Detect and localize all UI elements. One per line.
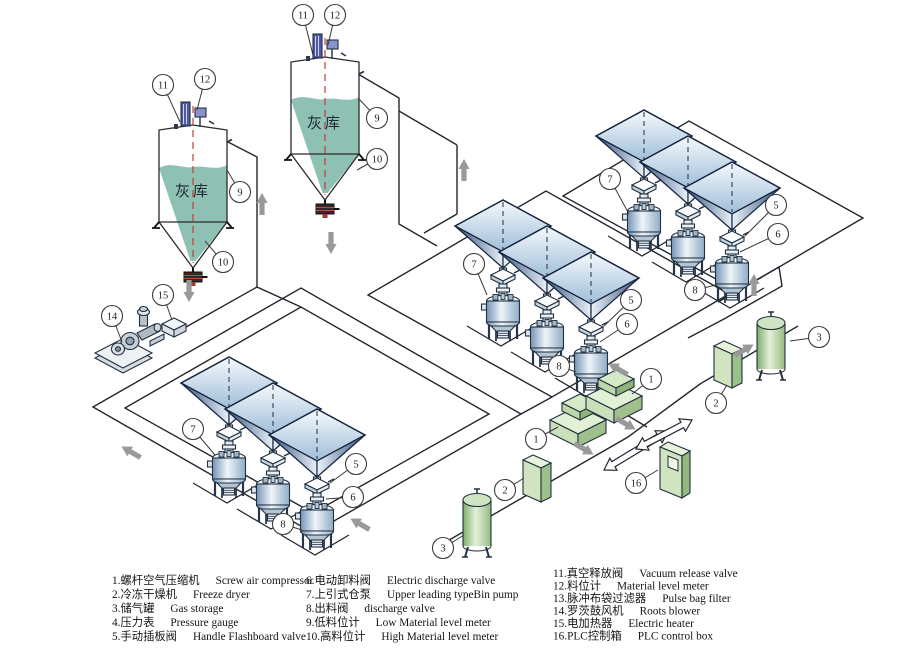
callout-number: 16 bbox=[631, 479, 642, 490]
flow-arrow-icon bbox=[458, 159, 469, 181]
legend-item-en: Handle Flashboard valve bbox=[193, 631, 306, 643]
callout: 14 bbox=[102, 306, 123, 343]
legend-item-en: Upper leading typeBin pump bbox=[387, 589, 519, 601]
legend-item-zh: 7.上引式仓泵 bbox=[306, 587, 371, 601]
legend-item-zh: 2.冷冻干燥机 bbox=[112, 587, 178, 601]
callout-number: 7 bbox=[607, 175, 612, 186]
bin-pump-1-3 bbox=[296, 477, 335, 550]
callout: 1 bbox=[632, 369, 662, 395]
legend-item-en: Pressure gauge bbox=[170, 617, 238, 629]
legend-item-en: Roots blower bbox=[640, 606, 701, 618]
callout: 12 bbox=[195, 69, 216, 111]
callout-number: 3 bbox=[440, 544, 445, 555]
silo-label: 灰库 bbox=[307, 115, 343, 132]
callout: 16 bbox=[626, 470, 659, 494]
callout-number: 10 bbox=[372, 155, 383, 166]
callout-number: 12 bbox=[330, 11, 341, 22]
legend-item-zh: 6.电动卸料阀 bbox=[306, 573, 371, 587]
legend-item-zh: 15.电加热器 bbox=[553, 617, 612, 630]
callout: 12 bbox=[325, 5, 346, 46]
legend-item-en: Low Material level meter bbox=[376, 617, 491, 629]
callout-number: 5 bbox=[628, 296, 633, 307]
legend-item-en: Freeze dryer bbox=[193, 589, 250, 601]
callout-number: 8 bbox=[280, 520, 285, 531]
callout: 6 bbox=[740, 224, 789, 253]
legend-item-en: PLC control box bbox=[638, 631, 714, 643]
legend-item: 7.上引式仓泵Upper leading typeBin pump bbox=[306, 587, 519, 601]
callout-number: 11 bbox=[298, 11, 308, 22]
pipe-run bbox=[228, 142, 301, 307]
flow-arrow-icon bbox=[119, 442, 144, 463]
callout: 7 bbox=[600, 169, 630, 215]
legend-item-zh: 5.手动插板阀 bbox=[112, 629, 177, 643]
silo-label: 灰库 bbox=[175, 183, 211, 200]
legend-item-en: discharge valve bbox=[364, 603, 434, 615]
legend-item: 2.冷冻干燥机Freeze dryer bbox=[112, 587, 250, 601]
callout-number: 1 bbox=[648, 375, 653, 386]
legend-item-en: Material level meter bbox=[617, 581, 709, 593]
callout-number: 9 bbox=[374, 114, 379, 125]
flow-arrow-icon bbox=[748, 274, 759, 296]
legend-item-zh: 9.低料位计 bbox=[306, 615, 360, 629]
callout-number: 1 bbox=[533, 435, 538, 446]
callout: 3 bbox=[433, 535, 465, 559]
flow-arrow-icon bbox=[325, 232, 336, 254]
legend-item: 12.料位计Material level meter bbox=[553, 579, 709, 593]
callout: 15 bbox=[153, 285, 174, 321]
callout-number: 11 bbox=[158, 81, 168, 92]
process-flow-diagram-canvas: 灰库灰库 11129101514111291075687568756812312… bbox=[0, 0, 920, 650]
legend-item-en: Electric discharge valve bbox=[387, 575, 495, 587]
callout-number: 3 bbox=[816, 333, 821, 344]
utility-equipment bbox=[462, 312, 786, 557]
legend-item-en: Screw air compressor bbox=[216, 575, 314, 587]
legend-item-zh: 3.储气罐 bbox=[112, 601, 154, 615]
bin-pump-2-1 bbox=[482, 268, 521, 341]
callout-number: 15 bbox=[158, 291, 169, 302]
callout: 10 bbox=[205, 241, 234, 273]
level-meter-icon bbox=[195, 108, 206, 117]
legend-item-zh: 8.出料阀 bbox=[306, 601, 348, 615]
legend-item-zh: 10.高料位计 bbox=[306, 629, 365, 643]
electric-heater bbox=[162, 318, 186, 337]
legend-item-en: Pulse bag filter bbox=[662, 593, 731, 605]
callout-number: 8 bbox=[692, 286, 697, 297]
legend-item-zh: 16.PLC控制箱 bbox=[553, 629, 622, 643]
legend-item: 13.脉冲布袋过滤器Pulse bag filter bbox=[553, 591, 731, 605]
legend-item: 3.储气罐Gas storage bbox=[112, 601, 223, 615]
pipe-run bbox=[521, 397, 552, 414]
gas-storage-tank-1 bbox=[462, 489, 492, 557]
legend-item: 10.高料位计High Material level meter bbox=[306, 629, 499, 643]
flow-arrow-icon bbox=[348, 514, 373, 535]
callout-number: 12 bbox=[200, 75, 211, 86]
callout-number: 7 bbox=[190, 425, 195, 436]
legend-item: 8.出料阀discharge valve bbox=[306, 601, 435, 615]
pipe-run bbox=[186, 287, 257, 327]
callout-number: 6 bbox=[624, 320, 629, 331]
callout-number: 7 bbox=[471, 260, 476, 271]
legend-item: 11.真空释放阀Vacuum release valve bbox=[553, 566, 738, 580]
ash-silo: 灰库 bbox=[284, 34, 366, 218]
legend-item: 15.电加热器Electric heater bbox=[553, 617, 694, 630]
callout: 11 bbox=[153, 75, 181, 123]
callout-number: 6 bbox=[350, 493, 355, 504]
callout-number: 5 bbox=[773, 201, 778, 212]
legend-item-en: Electric heater bbox=[628, 618, 694, 630]
pulse-bag-filter-icon bbox=[313, 34, 322, 58]
legend-item-en: High Material level meter bbox=[381, 631, 498, 643]
gas-storage-tank-2 bbox=[756, 312, 786, 380]
legend-item-zh: 4.压力表 bbox=[112, 615, 154, 629]
legend-item: 9.低料位计Low Material level meter bbox=[306, 615, 491, 629]
legend-item-en: Vacuum release valve bbox=[639, 568, 737, 580]
callout-number: 9 bbox=[237, 188, 242, 199]
freeze-dryer-2 bbox=[714, 341, 742, 388]
bin-pump-3-2 bbox=[667, 204, 706, 277]
legend-item-zh: 13.脉冲布袋过滤器 bbox=[553, 591, 646, 605]
callout: 11 bbox=[293, 5, 314, 56]
callout-number: 8 bbox=[556, 362, 561, 373]
callout-number: 5 bbox=[353, 460, 358, 471]
callout: 2 bbox=[706, 385, 728, 414]
legend-item: 5.手动插板阀Handle Flashboard valve bbox=[112, 629, 306, 643]
callout: 9 bbox=[227, 170, 251, 203]
legend-item: 16.PLC控制箱PLC control box bbox=[553, 629, 713, 643]
legend-item-zh: 11.真空释放阀 bbox=[553, 566, 623, 580]
callout-number: 2 bbox=[713, 399, 718, 410]
plc-control-box bbox=[660, 442, 690, 498]
legend-item: 6.电动卸料阀Electric discharge valve bbox=[306, 573, 495, 587]
callout: 9 bbox=[359, 99, 388, 129]
callout-number: 10 bbox=[218, 258, 229, 269]
callout: 6 bbox=[600, 314, 638, 343]
legend-item: 14.罗茨鼓风机Roots blower bbox=[553, 604, 700, 618]
callout: 2 bbox=[495, 478, 525, 501]
legend-item: 1.螺杆空气压缩机Screw air compressor bbox=[112, 573, 314, 587]
legend-item: 4.压力表Pressure gauge bbox=[112, 615, 238, 629]
legend: 1.螺杆空气压缩机Screw air compressor2.冷冻干燥机Free… bbox=[112, 566, 738, 643]
legend-item-zh: 1.螺杆空气压缩机 bbox=[112, 573, 200, 587]
callout-number: 2 bbox=[502, 486, 507, 497]
legend-item-en: Gas storage bbox=[170, 603, 223, 615]
callout-number: 6 bbox=[775, 230, 780, 241]
silo-discharge-valve bbox=[316, 204, 334, 214]
bin-pump-3-1 bbox=[623, 178, 662, 251]
callout: 6 bbox=[326, 487, 364, 508]
process-flow-diagram: 灰库灰库 11129101514111291075687568756812312… bbox=[0, 0, 920, 650]
legend-item-zh: 14.罗茨鼓风机 bbox=[553, 604, 624, 618]
freeze-dryer-1 bbox=[523, 455, 551, 502]
bin-pump-1-1 bbox=[208, 425, 247, 498]
pipe-run bbox=[399, 111, 457, 233]
callout-number: 14 bbox=[107, 312, 118, 323]
legend-item-zh: 12.料位计 bbox=[553, 579, 601, 593]
callout: 7 bbox=[464, 254, 488, 296]
bin-pump-3-3 bbox=[711, 230, 750, 303]
flow-arrow-icon bbox=[256, 193, 267, 215]
callout: 3 bbox=[790, 327, 830, 348]
pulse-bag-filter-icon bbox=[181, 102, 190, 126]
